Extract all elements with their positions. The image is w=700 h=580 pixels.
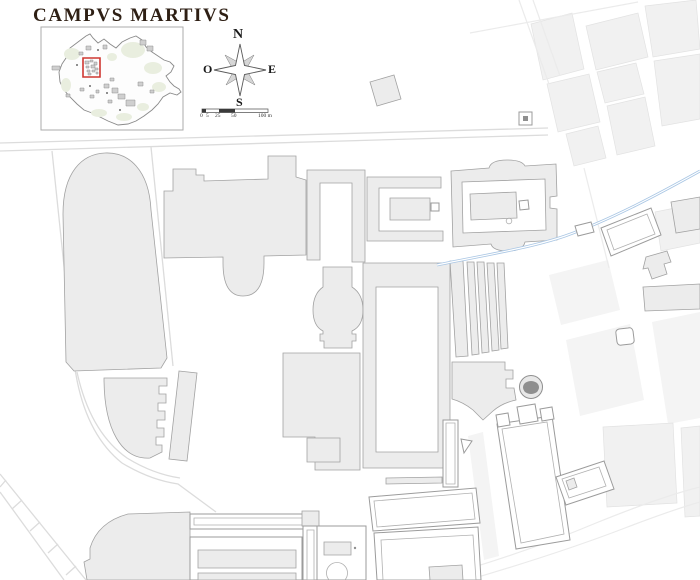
small-monument [431,203,439,211]
inset-building [96,90,99,93]
road-ladder-rung [0,480,6,487]
scalebar-label: 25 [215,113,221,119]
inset-building [86,46,91,50]
inset-building [92,70,95,72]
road-ladder-rail [0,474,86,580]
inset-building [86,66,89,68]
building-block [671,197,700,233]
inset-green-area [61,78,71,92]
city-block [566,126,606,166]
scalebar-label: 5 [206,113,209,119]
inset-building [150,90,154,93]
inset-building [95,68,98,70]
campus-martius-map-page: CAMPVS MARTIVS N E S O 0 5 25 50 100 m [0,0,700,580]
arcade-pier [467,262,479,355]
excavated-portico [369,488,480,531]
baths-building [164,156,306,296]
scalebar-label: 0 [200,113,203,119]
inset-building [140,40,146,45]
square-monument-core [523,116,528,121]
scalebar-segment [202,109,206,113]
stadium-footprint [63,153,167,371]
tower-cap [540,407,554,421]
curved-building [84,512,190,580]
slanted-bar-building [169,371,197,461]
compass-north-label: N [233,27,243,43]
inset-dot [97,49,99,51]
inset-dot [119,109,121,111]
inset-building [94,62,97,65]
hall-inner-block [198,550,296,568]
temple-cella [390,198,430,220]
inset-building [52,66,60,70]
excavated-hall-block [429,565,463,580]
road-ladder-rail [0,492,64,580]
tower-cap [496,413,510,427]
road-ladder-rung [66,566,76,575]
aqueduct-castellum [575,222,594,236]
road-ladder-rung [48,544,58,553]
round-monument-core [523,381,539,394]
inset-dot [76,64,78,66]
inset-building [103,45,107,49]
inset-building [110,78,114,81]
compass-east-label: E [268,62,276,77]
inset-building [96,72,98,74]
city-block [654,54,700,126]
faint-city-block [652,312,700,424]
road-ladder-rung [30,522,40,531]
scalloped-building [452,362,516,420]
scalebar-label: 100 m [258,113,272,119]
compass-south-label: S [236,95,243,110]
city-block [607,97,655,155]
u-shaped-building [307,170,365,262]
scalebar-segment [219,109,235,113]
inset-green-area [144,62,162,74]
inset-green-area [137,103,149,111]
city-block [547,74,600,132]
scalebar-label: 50 [231,113,237,119]
inset-green-area [116,113,132,121]
rounded-box-monument [616,328,634,345]
inset-building [126,100,135,106]
tower-cap [517,404,538,424]
inset-dot [106,92,108,94]
wall-bar [443,420,458,487]
small-building [307,438,340,462]
inset-building [90,60,93,62]
inset-building [88,73,91,75]
outlined-building [601,208,661,256]
inset-building [138,82,143,86]
inset-building [147,46,153,51]
inset-building [104,84,109,88]
inset-building [87,70,90,72]
city-block [597,63,644,103]
wall-bar [303,526,318,580]
city-block [645,0,700,57]
small-monument [519,200,529,210]
arcade-pier [487,263,499,351]
rotunda-building [313,267,363,348]
saepta-courtyard [376,287,438,452]
inset-building [85,61,89,64]
annex-block [324,542,351,555]
road-ladder-rung [12,500,22,509]
city-block [603,423,677,507]
compass-star [214,44,266,96]
arcade-pier [497,263,508,349]
pier-cap [302,511,319,526]
inset-building [79,52,83,55]
inset-building [66,94,70,97]
thin-slat [386,477,442,484]
inset-green-area [91,109,107,117]
map-canvas [0,0,700,580]
inset-dot [89,85,91,87]
inset-green-area [64,48,80,60]
building-block [643,284,700,311]
inset-green-area [107,53,117,61]
compass-west-label: O [203,62,212,77]
inset-building [118,94,125,99]
faint-city-block [549,260,620,325]
portico-strip [190,514,307,529]
hall-inner-block [198,573,296,580]
inset-building [112,88,118,93]
arcade-pier [477,262,489,353]
annex-dot [354,547,356,549]
tilted-square-building [370,75,401,106]
excavated-hall [374,527,481,580]
inset-building [91,65,95,68]
road-faint [584,168,609,268]
temple-cella [470,192,517,220]
inset-building [80,88,84,91]
page-title: CAMPVS MARTIVS [33,5,230,27]
inset-building [108,100,112,103]
city-block [586,13,648,70]
inset-building [90,95,94,98]
road-line [0,135,548,151]
arcade-pier [450,261,468,357]
cross-building [643,251,671,279]
road-faint [468,502,700,580]
